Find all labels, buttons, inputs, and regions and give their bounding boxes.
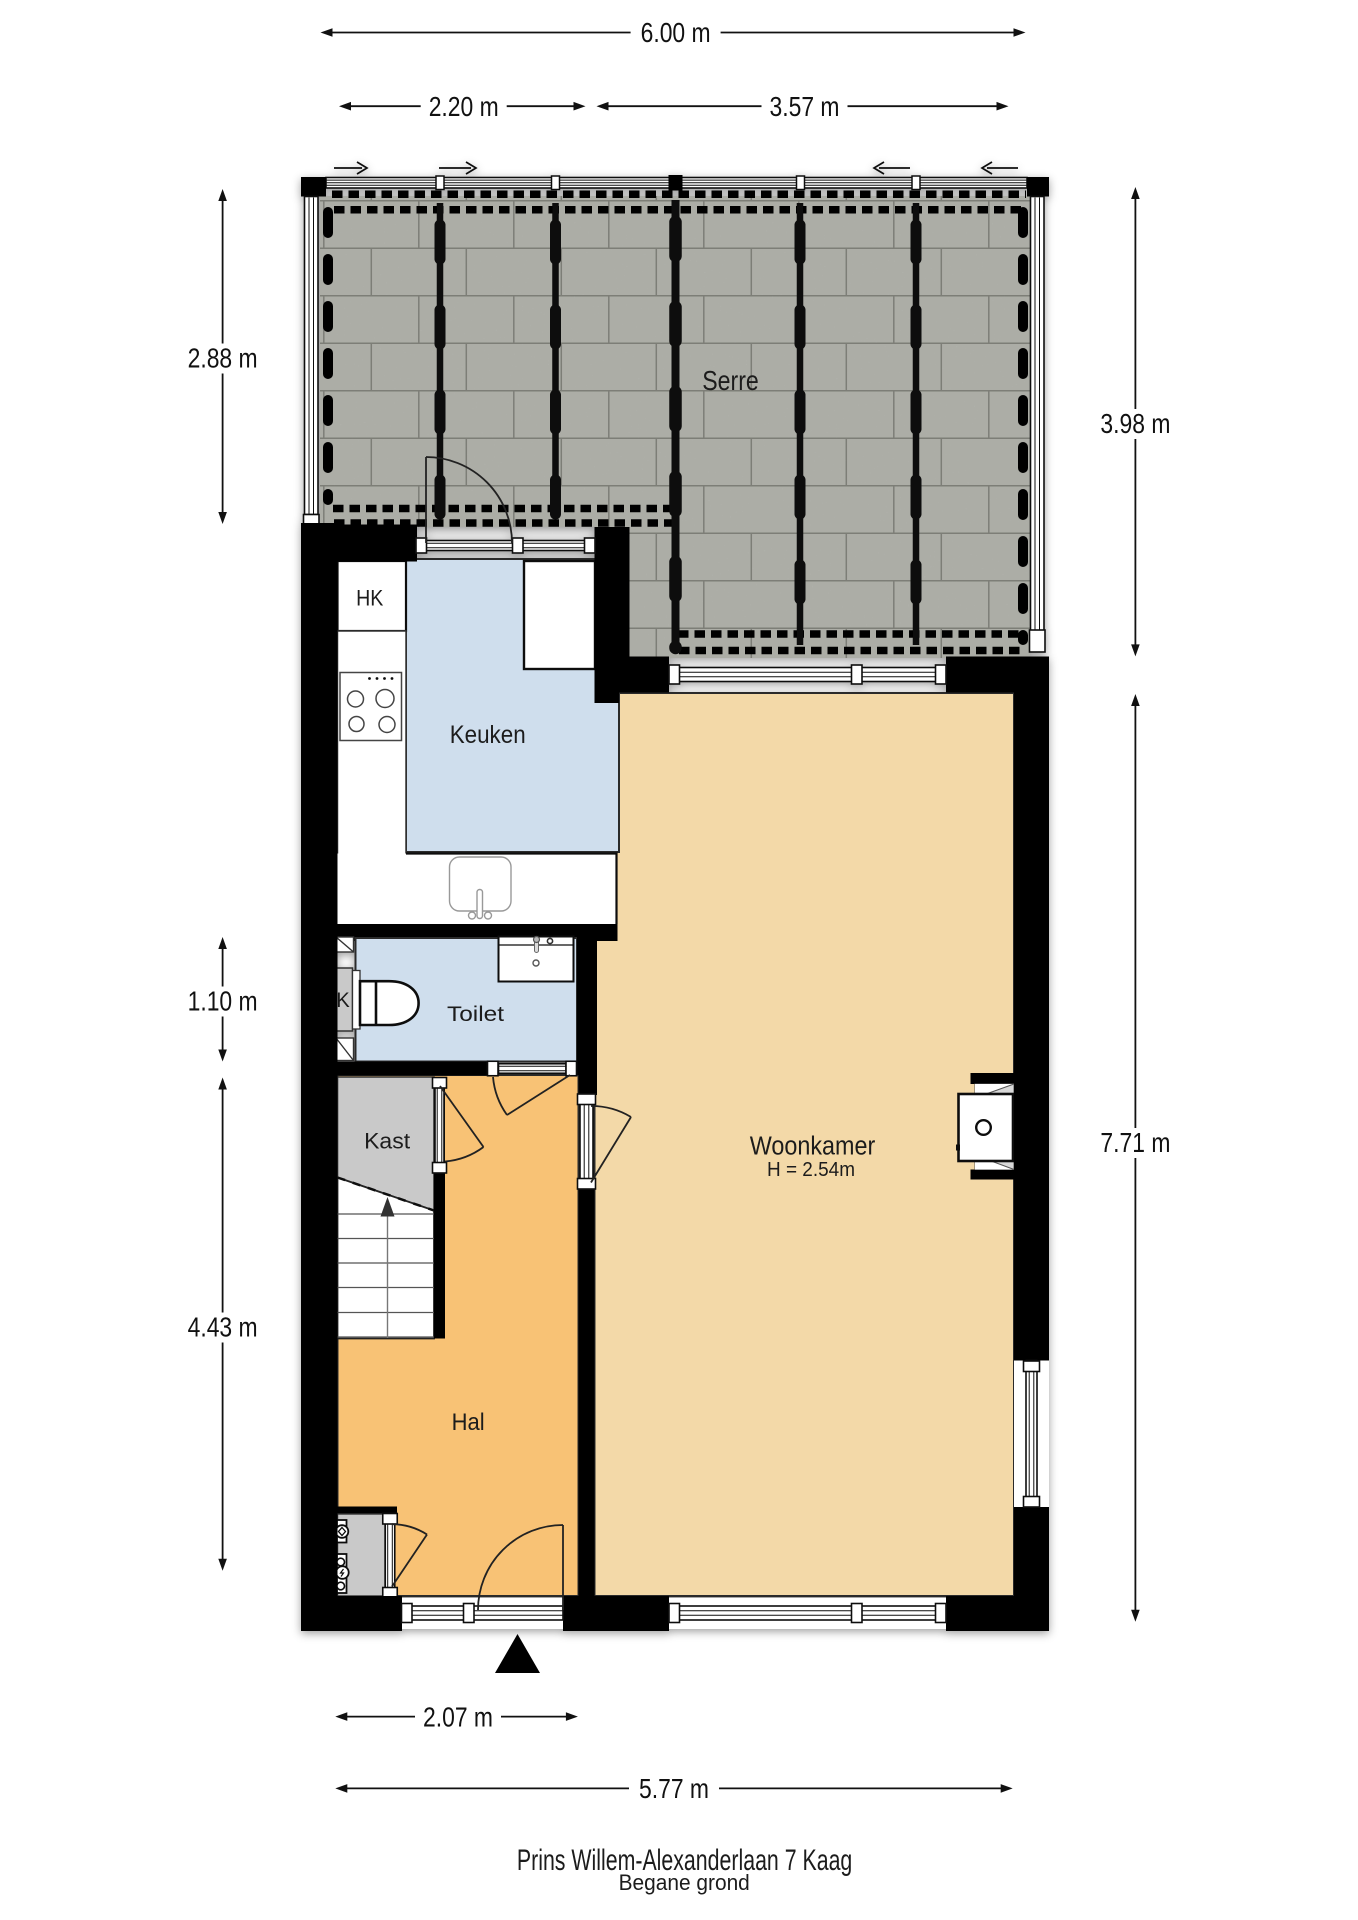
svg-text:3.57 m: 3.57 m [770,91,840,122]
svg-text:2.88 m: 2.88 m [188,343,258,374]
svg-text:K: K [336,989,350,1012]
svg-text:Kast: Kast [364,1128,410,1153]
svg-text:Serre: Serre [702,365,759,396]
svg-text:1.10 m: 1.10 m [188,986,258,1017]
svg-text:2.20 m: 2.20 m [429,91,499,122]
svg-text:Toilet: Toilet [447,1003,504,1026]
svg-text:4.43 m: 4.43 m [188,1312,258,1343]
svg-text:Begane grond: Begane grond [619,1870,750,1895]
svg-text:Hal: Hal [452,1409,485,1436]
svg-text:7.71 m: 7.71 m [1100,1127,1170,1158]
svg-text:Woonkamer: Woonkamer [750,1130,876,1160]
svg-text:3.98 m: 3.98 m [1100,408,1170,439]
svg-text:H = 2.54m: H = 2.54m [767,1159,855,1181]
svg-text:6.00 m: 6.00 m [641,17,711,48]
svg-text:2.07 m: 2.07 m [423,1701,493,1732]
svg-text:5.77 m: 5.77 m [639,1773,709,1804]
svg-text:Keuken: Keuken [450,721,526,749]
svg-text:HK: HK [356,586,383,611]
